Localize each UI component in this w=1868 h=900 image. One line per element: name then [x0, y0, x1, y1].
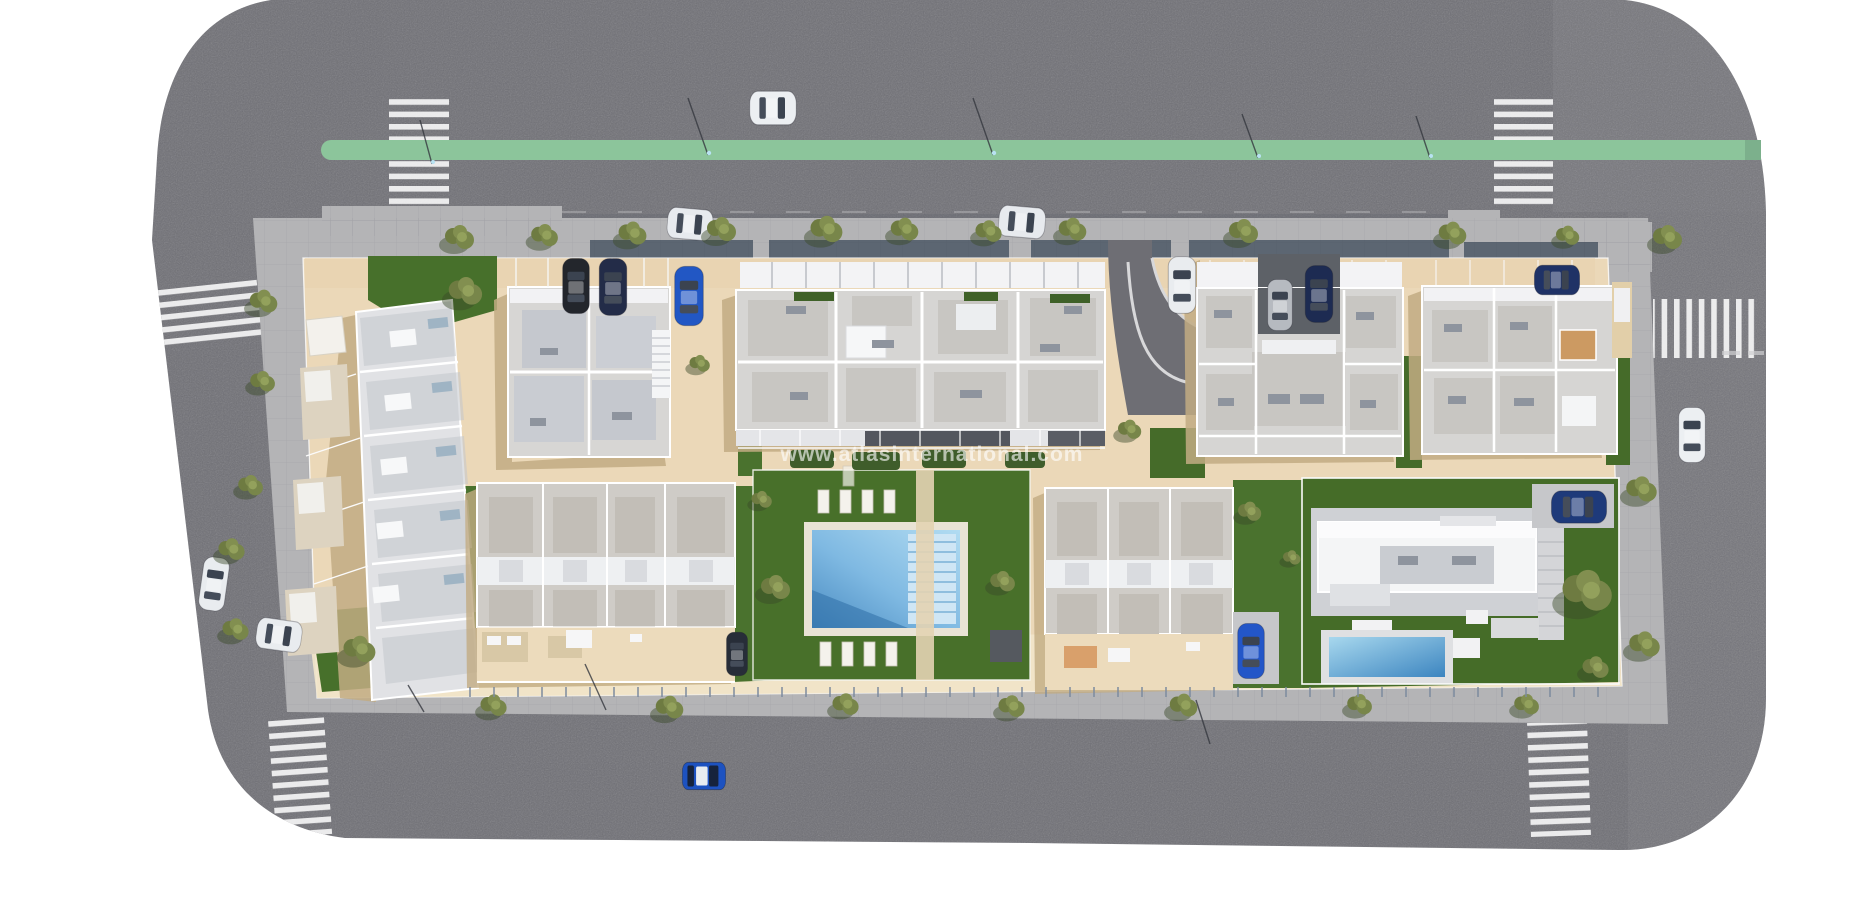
svg-text:www.atlasinternational.com: www.atlasinternational.com [780, 443, 1084, 466]
